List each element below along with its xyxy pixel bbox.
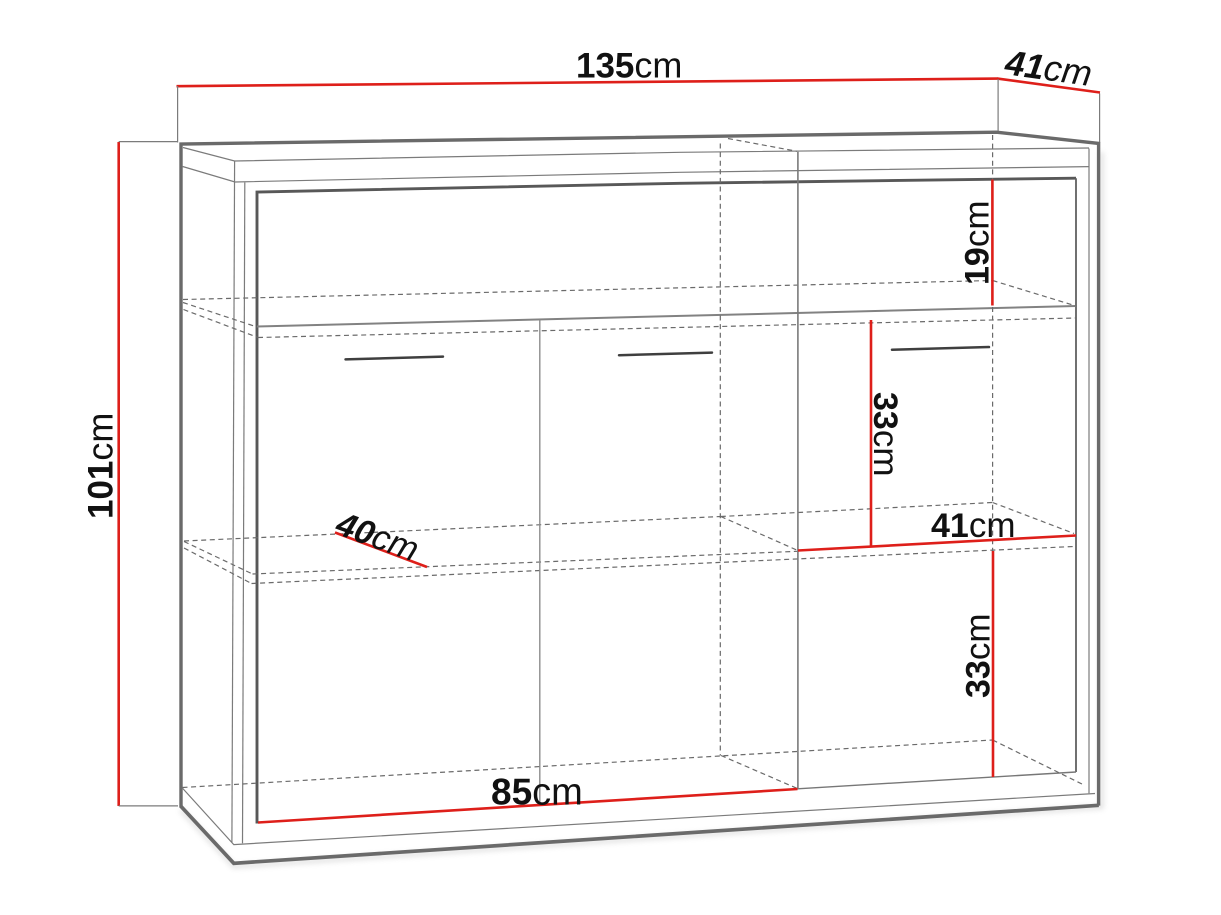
svg-text:135cm: 135cm [576, 45, 682, 86]
svg-text:33cm: 33cm [866, 392, 905, 476]
svg-text:19cm: 19cm [958, 201, 997, 285]
svg-text:85cm: 85cm [491, 772, 583, 814]
svg-text:41cm: 41cm [931, 506, 1015, 545]
svg-text:101cm: 101cm [80, 413, 121, 519]
svg-text:33cm: 33cm [959, 614, 998, 698]
